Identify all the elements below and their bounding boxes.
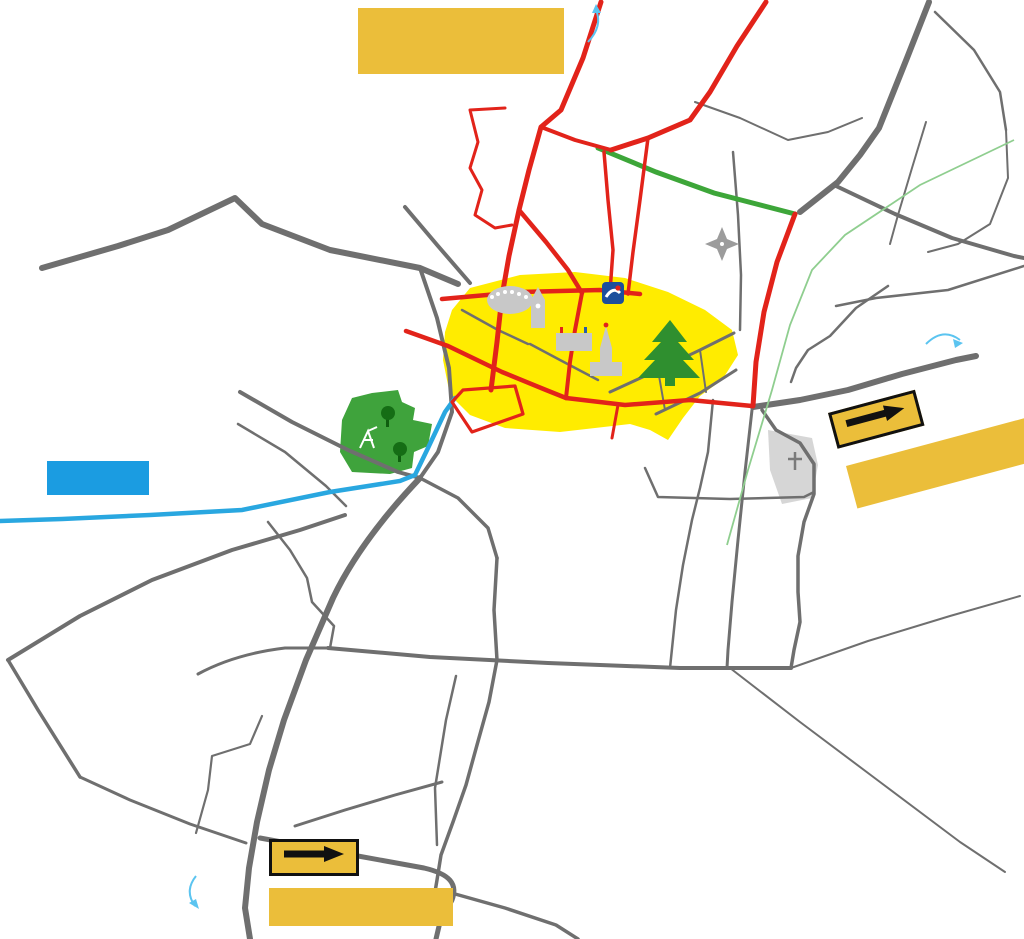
road-mouilleres — [432, 558, 497, 910]
road-bois-chevaux — [42, 198, 458, 284]
road-arcy-ne — [791, 596, 1020, 668]
road-mouilleres-diag — [295, 782, 442, 826]
road-cellier-moines — [604, 152, 613, 292]
road-varanges — [405, 207, 470, 283]
deviation-map — [0, 0, 1024, 939]
road-tamaris-sw — [8, 660, 80, 777]
road-east-vertical — [733, 152, 741, 330]
road-brulee — [611, 2, 766, 150]
park-zone — [340, 390, 432, 474]
road-deviation-south-2 — [448, 892, 578, 939]
road-ne-loop-1 — [935, 12, 1006, 130]
halle-ronde-icon — [487, 286, 533, 314]
until-barraude-banner — [47, 461, 149, 495]
road-tamaris — [8, 515, 345, 660]
road-beaune-junction — [541, 127, 611, 150]
town-center-zone — [443, 272, 738, 440]
road-imp-ez — [695, 102, 862, 140]
road-corchevreaux — [268, 522, 334, 648]
road-sauges — [80, 777, 246, 843]
road-dracy-north — [800, 2, 929, 212]
compass-icon — [705, 227, 739, 261]
road-arcy-se — [730, 668, 1005, 872]
road-avenue-chalon — [753, 356, 976, 407]
route-green-puits-brechet — [598, 148, 795, 214]
deviation-date-bottom — [269, 888, 453, 926]
road-clos-marolles — [470, 108, 512, 228]
road-arcy — [328, 648, 791, 668]
road-erables — [791, 286, 888, 382]
chalon-arrowhead-icon — [953, 339, 963, 348]
deviation-sign-bottom — [269, 839, 359, 876]
road-park-to-mouilleres — [420, 478, 497, 558]
road-cemetery-west — [727, 410, 752, 668]
road-lauriers — [836, 266, 1024, 306]
buxy-arrowhead-icon — [189, 899, 199, 909]
road-impasse-sauges — [196, 716, 262, 833]
road-rue-du-bois — [670, 400, 713, 668]
road-dracy-red — [753, 214, 795, 406]
deviation-date-line — [942, 454, 946, 470]
closure-notice-banner — [358, 8, 564, 74]
laposte-logo-icon — [602, 282, 624, 304]
deviation-arrow-icon — [282, 846, 346, 862]
